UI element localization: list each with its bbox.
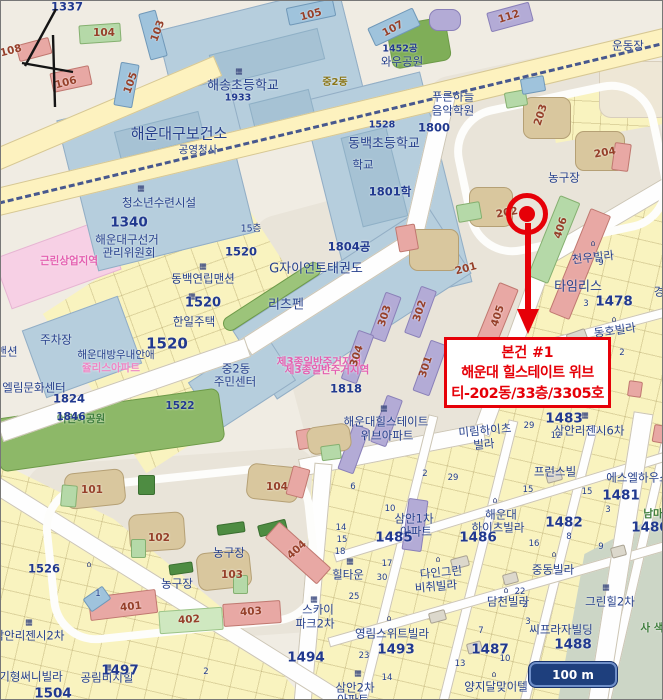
- place-label: 리츠펜: [268, 299, 304, 312]
- building-icon: ▦: [199, 262, 207, 271]
- lot-number: 29: [448, 474, 459, 483]
- lot-number: 18: [335, 548, 346, 557]
- parcel-number: 1494: [287, 651, 325, 665]
- parcel-number: 1824: [53, 393, 85, 405]
- place-label: 빌라: [473, 438, 495, 451]
- house-icon: ⌂: [503, 586, 508, 595]
- zone-label: 근린상업지역: [40, 256, 98, 267]
- place-label: 영림스위트빌라: [355, 628, 429, 640]
- place-label: 에스엘하우스: [606, 472, 663, 484]
- house-icon: ⌂: [386, 614, 391, 623]
- place-label: 프런스빌: [534, 466, 576, 478]
- parcel-number: 1452공: [382, 44, 417, 54]
- building-icon: ▦: [354, 669, 362, 678]
- school-icon: ▦: [235, 67, 243, 76]
- lot-number: 1: [95, 590, 100, 599]
- house-icon: ⌂: [435, 555, 440, 564]
- subject-callout[interactable]: 본건 #1 해운대 힐스테이트 위브 티-202동/33층/3305호: [444, 337, 611, 408]
- place-label: 해운대: [485, 509, 517, 521]
- building-icon: ▦: [137, 184, 145, 193]
- place-label: 농구장: [213, 547, 245, 559]
- house-icon: ⌂: [86, 560, 91, 569]
- building-number: 102: [148, 533, 170, 544]
- scale-bar-label: 100 m: [552, 668, 594, 682]
- parcel-number: 1485: [375, 531, 413, 545]
- lot-number: 13: [455, 660, 466, 669]
- place-label: 남마: [643, 509, 662, 520]
- parcel-number: 1497: [101, 664, 139, 678]
- place-label: 맨션: [0, 346, 18, 358]
- annotation-arrow-line: [525, 223, 531, 311]
- building-number: 401: [120, 601, 143, 614]
- subject-marker-dot[interactable]: [519, 206, 535, 222]
- parcel-number: 1520: [185, 297, 221, 310]
- lot-number: 17: [382, 560, 393, 569]
- parcel-number: 1818: [330, 383, 362, 395]
- scale-bar: 100 m: [529, 662, 617, 687]
- building-number: 104: [266, 482, 288, 493]
- lot-number: 22: [515, 588, 526, 597]
- map[interactable]: ▦ ▦ ▦ ▦ ▦ ⌂ ⌂ ▦ ⌂ ⌂ ▦ ⌂ ⌂ ▦ ▦ ▦ ▦ ⌂ ⌂ ⌂ …: [0, 0, 663, 700]
- lot-number: 29: [524, 422, 535, 431]
- house-icon: ⌂: [491, 670, 496, 679]
- parcel-number: 1481: [602, 489, 640, 503]
- lot-number: 10: [385, 505, 396, 514]
- tower-203: [523, 97, 571, 139]
- place-label: 파크2차: [295, 618, 334, 630]
- house-icon: ⌂: [492, 496, 497, 505]
- lot-number: 8: [566, 533, 571, 542]
- lot-number: 15: [523, 486, 534, 495]
- place-label: 힐타운: [332, 569, 364, 581]
- building: [320, 444, 342, 462]
- house-icon: ⌂: [590, 239, 595, 248]
- place-label: 공영청사: [179, 145, 218, 156]
- parcel-number: 1800: [418, 122, 450, 134]
- place-label: 해운대구보건소: [131, 127, 228, 142]
- parcel-number: 1846: [56, 412, 85, 423]
- parcel-number: 1482: [545, 516, 583, 530]
- place-label: 운동장: [612, 40, 644, 52]
- lot-number: 6: [350, 483, 355, 492]
- place-label: 해운대구선거: [95, 234, 158, 246]
- lot-number: 25: [349, 593, 360, 602]
- place-label: 타임리스: [554, 281, 602, 294]
- place-label: 쥴리스아파트: [82, 363, 140, 374]
- place-label: 동백연립맨션: [171, 273, 234, 285]
- lot-number: 12: [551, 432, 562, 441]
- place-label: 중2동: [222, 363, 250, 375]
- building-number: 101: [81, 485, 103, 496]
- place-label: 농구장: [161, 578, 193, 590]
- parcel-number: 1340: [110, 216, 148, 230]
- road-label: 중2동: [322, 78, 347, 88]
- parcel-number: 1486: [459, 531, 497, 545]
- lot-number: 16: [529, 540, 540, 549]
- school-label: 동백초등학교: [348, 138, 420, 151]
- place-label: 주민센터: [214, 376, 256, 388]
- lot-number: 2: [522, 601, 527, 610]
- place-label: 양지달맞이텔: [464, 681, 527, 693]
- place-label: 해운대힐스테이트: [344, 416, 429, 428]
- annotation-arrow-head: [517, 309, 539, 334]
- place-label: 해운대방우내안애: [77, 350, 154, 361]
- parcel-number: 1804공: [328, 241, 371, 253]
- place-label: 경: [654, 286, 663, 298]
- lot-number: 9: [598, 259, 603, 268]
- lot-number: 23: [359, 652, 370, 661]
- place-label: 기형써니빌라: [0, 671, 63, 683]
- parcel-number: 1478: [595, 295, 633, 309]
- lot-number: 3: [525, 618, 530, 627]
- place-label: 삼안리젠시2차: [0, 630, 64, 642]
- callout-building: 해운대 힐스테이트 위브: [461, 362, 594, 382]
- place-label: 씨프라자빌딩: [529, 624, 592, 636]
- place-label: 관리위원회: [103, 247, 156, 259]
- place-label: 음악학원: [432, 105, 474, 117]
- place-label: 사 색: [641, 623, 663, 634]
- parcel-number: 1480: [631, 521, 663, 535]
- lot-number: 14: [336, 524, 347, 533]
- place-label: 한일주택: [173, 316, 215, 328]
- lot-number: 30: [377, 574, 388, 583]
- lot-number: 3: [583, 300, 588, 309]
- place-label: 삼안1차: [394, 513, 433, 525]
- parcel-number: 1488: [554, 638, 592, 652]
- lot-number: 10: [500, 655, 511, 664]
- place-label: 학교: [352, 159, 373, 171]
- place-label: 아파트: [337, 694, 369, 700]
- lot-number: 2: [619, 349, 624, 358]
- parcel-number: 1528: [369, 120, 395, 130]
- building-number: 403: [240, 606, 263, 618]
- parcel-number: 1504: [34, 687, 72, 700]
- parcel-number: 1526: [28, 563, 60, 575]
- parcel-number: 1522: [165, 401, 194, 412]
- building-number: 402: [178, 614, 201, 626]
- school-label: 해송초등학교: [207, 80, 279, 93]
- place-label: 그린힐2차: [585, 596, 635, 608]
- building: [131, 539, 146, 558]
- lot-number: 7: [478, 627, 483, 636]
- place-label: 주차장: [40, 334, 72, 346]
- park-label: 와우공원: [381, 56, 423, 68]
- basketball-court: [138, 475, 155, 495]
- callout-title: 본건 #1: [501, 342, 553, 362]
- building: [429, 9, 461, 31]
- building-number: 103: [221, 570, 243, 581]
- place-label: 위브아파트: [361, 430, 414, 442]
- house-icon: ⌂: [551, 550, 556, 559]
- place-label: 삼안리젠시6차: [554, 425, 625, 437]
- lot-number: 2: [203, 668, 208, 677]
- parcel-number: 1493: [377, 643, 415, 657]
- place-label: 푸른하늘: [432, 91, 474, 103]
- parcel-number: 1933: [225, 93, 251, 103]
- building-icon: ▦: [602, 583, 610, 592]
- callout-unit: 티-202동/33층/3305호: [451, 382, 604, 403]
- building-number: 104: [93, 28, 115, 39]
- building-icon: ▦: [346, 557, 354, 566]
- lot-number: 9: [598, 543, 603, 552]
- parcel-number: 1801학: [369, 186, 412, 198]
- lot-number: 14: [382, 674, 393, 683]
- building-icon: ▦: [25, 618, 33, 627]
- place-label: 15층: [241, 224, 262, 234]
- building: [627, 380, 643, 398]
- place-label: G자이언트태권도: [269, 263, 363, 276]
- lot-number: 2: [422, 470, 427, 479]
- building: [395, 223, 419, 252]
- parcel-number: 1520: [225, 246, 257, 258]
- building: [60, 484, 78, 507]
- place-label: 스카이: [302, 604, 334, 616]
- lot-number: 15: [582, 488, 593, 497]
- place-label: 중동빌라: [532, 564, 574, 576]
- lot-number: 3: [605, 506, 610, 515]
- place-label: 청소년수련시설: [122, 197, 196, 209]
- handwritten-page-mark: [9, 3, 84, 115]
- place-label: 농구장: [548, 172, 580, 184]
- lot-number: 15: [337, 536, 348, 545]
- building-icon: ▦: [380, 404, 388, 413]
- building: [652, 424, 663, 444]
